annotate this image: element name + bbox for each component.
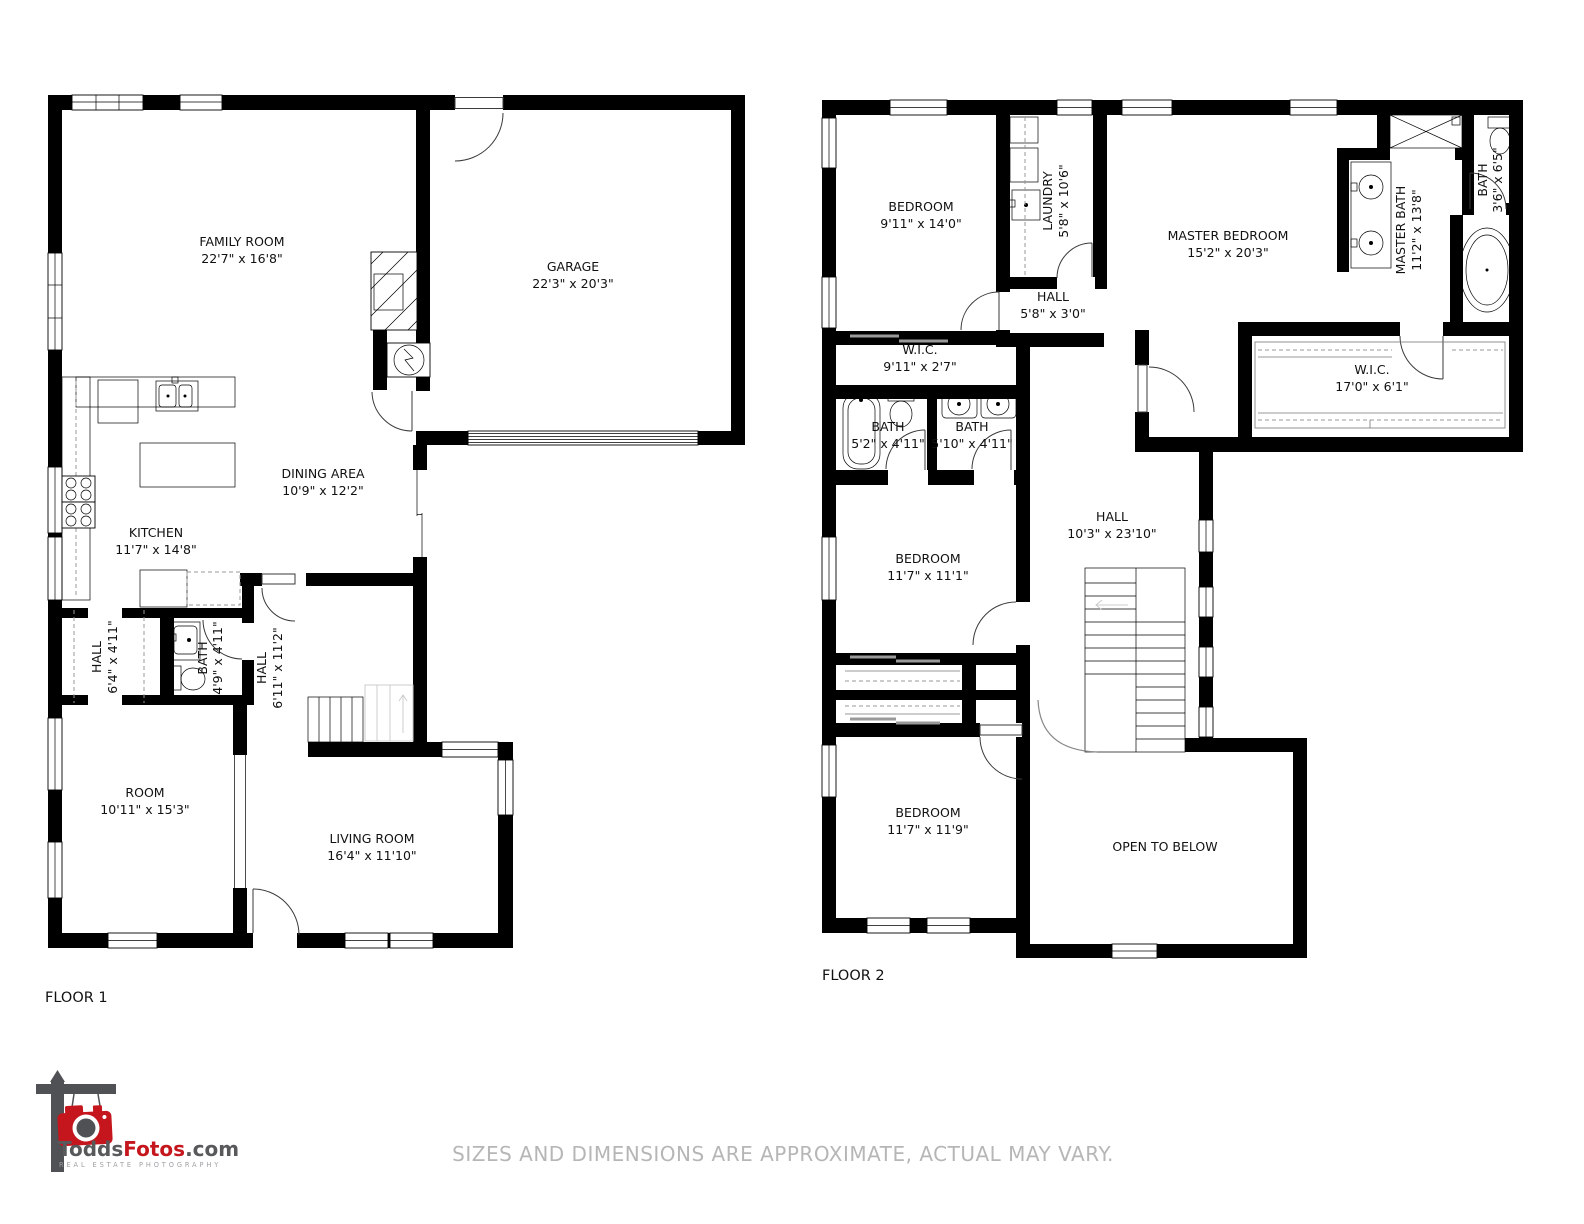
garage-to-dining-door-arc — [372, 392, 412, 431]
room-dims-wic-small: 9'11" x 2'7" — [883, 359, 956, 374]
stairs-floor1 — [308, 685, 413, 742]
fridge-icon — [98, 380, 138, 423]
kitchen-island — [140, 443, 235, 487]
stove-icon — [62, 476, 95, 528]
floor1-plan: FAMILY ROOM 22'7" x 16'8" GARAGE 22'3" x… — [45, 95, 745, 1006]
floor1-windows — [48, 95, 698, 948]
room-dims-bath1: 4'9" x 4'11" — [210, 621, 225, 694]
room-label-bedroom-front: BEDROOM — [888, 199, 953, 214]
floor1-walls — [48, 95, 745, 948]
bedroom-front-door-arc — [961, 292, 999, 330]
room-dims-hall-b: 6'11" x 11'2" — [270, 627, 285, 708]
brand-text: ToddsFotos.com — [58, 1137, 239, 1161]
laundry-appliances — [1009, 117, 1040, 275]
room-label-living-room: LIVING ROOM — [329, 831, 414, 846]
floor2-labels: BEDROOM 9'11" x 14'0" LAUNDRY 5'8" x 10'… — [822, 147, 1505, 984]
floor2-plan: BEDROOM 9'11" x 14'0" LAUNDRY 5'8" x 10'… — [822, 100, 1523, 984]
logo-tagline: REAL ESTATE PHOTOGRAPHY — [59, 1161, 221, 1169]
bedroom-mid-door-arc — [973, 602, 1016, 645]
stair-rail-curve — [1038, 700, 1097, 752]
room-dims-laundry: 5'8" x 10'6" — [1056, 164, 1071, 237]
room-label-dining-area: DINING AREA — [281, 466, 364, 481]
room-label-hall-main: HALL — [1096, 509, 1128, 524]
room-dims-bedroom-front: 9'11" x 14'0" — [880, 216, 961, 231]
dining-to-hall-door-arc — [262, 588, 295, 621]
room-label-bath-tub: BATH — [871, 419, 904, 434]
room-label-laundry: LAUNDRY — [1040, 171, 1055, 231]
bathtub-icon — [1460, 228, 1514, 312]
room-dims-hall-a: 6'4" x 4'11" — [105, 620, 120, 693]
room-dims-bath-small: 3'6" x 6'5" — [1490, 147, 1505, 213]
room-dims-bath-tub: 5'2" x 4'11" — [851, 436, 924, 451]
room-label-wic-master: W.I.C. — [1354, 362, 1389, 377]
floor1-doors — [203, 95, 503, 948]
room-dims-garage: 22'3" x 20'3" — [532, 276, 613, 291]
room-dims-kitchen: 11'7" x 14'8" — [115, 542, 196, 557]
room-dims-wic-master: 17'0" x 6'1" — [1335, 379, 1408, 394]
room-label-bedroom-mid: BEDROOM — [895, 551, 960, 566]
floor1-labels: FAMILY ROOM 22'7" x 16'8" GARAGE 22'3" x… — [45, 234, 614, 1006]
electrical-panel-icon — [387, 343, 430, 377]
stairs-direction-arrow — [1096, 600, 1128, 610]
floor2-title: FLOOR 2 — [822, 968, 885, 984]
room-dims-bedroom-mid: 11'7" x 11'1" — [887, 568, 968, 583]
room-label-hall-small: HALL — [1037, 289, 1069, 304]
room-label-garage: GARAGE — [547, 259, 599, 274]
brand-part2: Fotos — [123, 1137, 185, 1161]
kitchen-counters — [62, 377, 240, 607]
disclaimer-text: SIZES AND DIMENSIONS ARE APPROXIMATE, AC… — [452, 1142, 1114, 1166]
shower-icon — [1390, 115, 1462, 148]
wic-door-arc — [1400, 336, 1443, 379]
brand-part3: .com — [185, 1137, 239, 1161]
room-label-master-bath: MASTER BATH — [1393, 186, 1408, 275]
room-label-room: ROOM — [125, 785, 164, 800]
room-label-open-below: OPEN TO BELOW — [1112, 839, 1217, 854]
front-door-arc — [253, 889, 299, 935]
stairs-floor2 — [1038, 568, 1185, 752]
room-dims-family-room: 22'7" x 16'8" — [201, 251, 282, 266]
room-label-master-bedroom: MASTER BEDROOM — [1168, 228, 1289, 243]
logo: ToddsFotos.com REAL ESTATE PHOTOGRAPHY — [36, 1070, 239, 1172]
room-label-bath-sinks: BATH — [955, 419, 988, 434]
room-dims-bedroom-back: 11'7" x 11'9" — [887, 822, 968, 837]
room-label-bath1: BATH — [195, 641, 210, 674]
garage-entry-door-arc — [455, 113, 503, 161]
master-bedroom-door-arc — [1149, 367, 1194, 412]
room-dims-hall-small: 5'8" x 3'0" — [1020, 306, 1086, 321]
floorplan-drawing: FAMILY ROOM 22'7" x 16'8" GARAGE 22'3" x… — [0, 0, 1584, 1224]
room-label-hall-b: HALL — [254, 652, 269, 684]
laundry-door-arc — [1057, 243, 1092, 278]
room-dims-room: 10'11" x 15'3" — [100, 802, 189, 817]
sign-crossbar — [36, 1084, 116, 1094]
room-label-bedroom-back: BEDROOM — [895, 805, 960, 820]
stairs-direction-arrow — [399, 695, 407, 733]
room-label-wic-small: W.I.C. — [902, 342, 937, 357]
kitchen-sink-icon — [156, 377, 198, 411]
room-label-kitchen: KITCHEN — [129, 525, 183, 540]
floor1-title: FLOOR 1 — [45, 990, 108, 1006]
double-sink-vanity — [1351, 162, 1391, 268]
dishwasher-icon — [187, 572, 240, 605]
room-label-hall-a: HALL — [89, 641, 104, 673]
room-dims-living-room: 16'4" x 11'10" — [327, 848, 416, 863]
room-dims-bath-sinks: 5'10" x 4'11" — [931, 436, 1012, 451]
room-dims-hall-main: 10'3" x 23'10" — [1067, 526, 1156, 541]
floorplan-page: FAMILY ROOM 22'7" x 16'8" GARAGE 22'3" x… — [0, 0, 1584, 1224]
room-label-bath-small: BATH — [1475, 163, 1490, 196]
bedroom-back-door-arc — [980, 737, 1022, 779]
room-label-family-room: FAMILY ROOM — [199, 234, 284, 249]
room-dims-master-bath: 11'2" x 13'8" — [1409, 189, 1424, 270]
room-dims-master-bedroom: 15'2" x 20'3" — [1187, 245, 1268, 260]
brand-part1: Todds — [58, 1137, 123, 1161]
room-dims-dining-area: 10'9" x 12'2" — [282, 483, 363, 498]
